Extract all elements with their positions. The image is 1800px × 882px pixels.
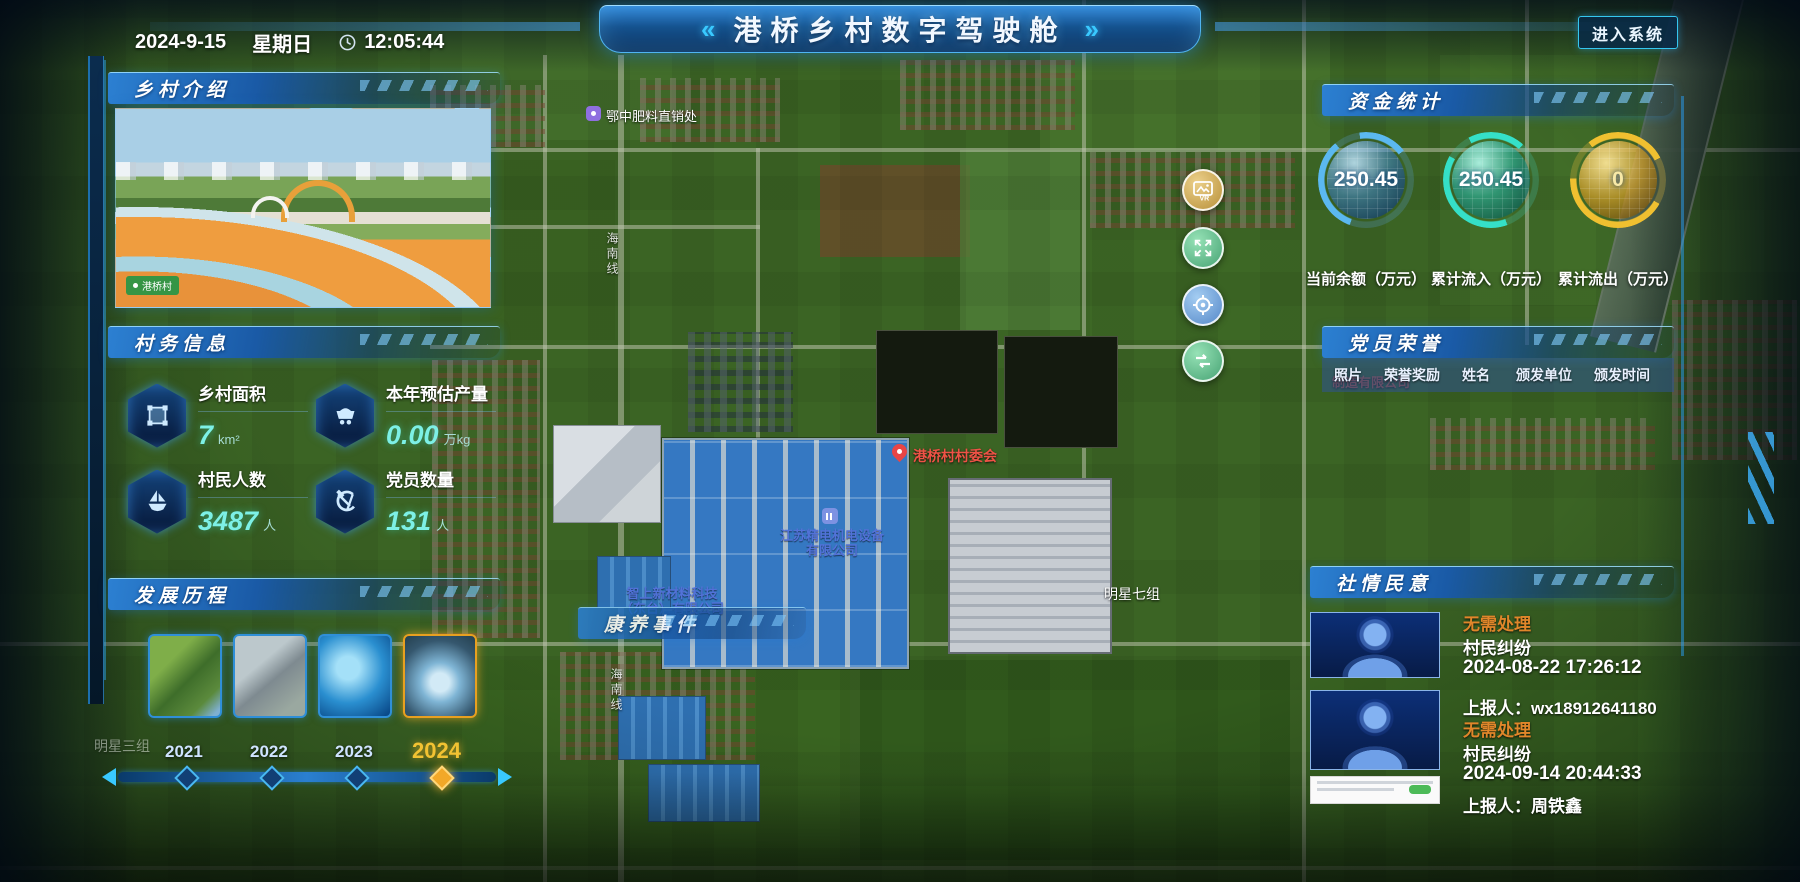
right-frame-slashes: [1748, 432, 1774, 524]
year-2022[interactable]: 2022: [250, 742, 288, 762]
left-tech-frame: [88, 56, 104, 704]
history-thumb-2023[interactable]: [318, 634, 392, 718]
stat-villager-count: 村民人数 3487人: [128, 466, 314, 537]
map-road: [1302, 0, 1306, 882]
datetime-bar: 2024-9-15 星期日 12:05:44: [135, 28, 444, 57]
sentiment-type: 村民纠纷: [1463, 740, 1531, 765]
weekday-text: 星期日: [252, 28, 312, 57]
company1-line2: 有限公司: [768, 543, 896, 558]
intro-panel-title: 乡村介绍: [108, 75, 230, 102]
area-icon: [128, 384, 186, 448]
road-name-label: 海南线: [604, 232, 621, 277]
locate-icon[interactable]: [1182, 284, 1224, 326]
timeline-slider[interactable]: [118, 772, 496, 782]
left-tech-frame-line: [104, 60, 106, 680]
warehouse-building: [948, 478, 1112, 654]
gauge-value: 250.45: [1318, 132, 1414, 228]
village-photo[interactable]: 港桥村: [115, 108, 491, 308]
stat-label: 村民人数: [198, 466, 308, 498]
panel-header-health-events: 康养事件: [578, 607, 806, 639]
company1-line1: 江苏精电机电设备: [768, 528, 896, 543]
sentiment-reporter: 上报人：周铁鑫: [1463, 792, 1582, 817]
stat-unit: 万kg: [444, 429, 471, 448]
location-pin-icon: [133, 283, 138, 288]
sentiment-attachment-thumb[interactable]: [1310, 776, 1440, 804]
stat-value: 0.00: [386, 420, 439, 451]
chevron-left-icon: «: [701, 14, 715, 45]
col-photo: 照片: [1334, 365, 1362, 385]
map-road: [543, 55, 547, 882]
panel-header-funds: 资金统计: [1322, 84, 1674, 116]
col-name: 姓名: [1462, 365, 1490, 385]
sentiment-status: 无需处理: [1463, 610, 1531, 635]
sentiment-type: 村民纠纷: [1463, 634, 1531, 659]
col-award: 荣誉奖励: [1384, 365, 1440, 385]
residential-blocks: [688, 332, 793, 432]
panel-header-honors: 党员荣誉: [1322, 326, 1674, 358]
stat-label: 乡村面积: [198, 380, 308, 412]
stat-party-member-count: 党员数量 131人: [316, 466, 502, 537]
year-2024[interactable]: 2024: [412, 738, 461, 764]
map-label-group3: 明星三组: [94, 736, 150, 756]
year-2021[interactable]: 2021: [165, 742, 203, 762]
clock-icon: [338, 33, 357, 52]
pond: [1004, 336, 1118, 448]
sentiment-avatar[interactable]: [1310, 612, 1440, 678]
history-thumb-2024[interactable]: [403, 634, 477, 718]
sentiment-time: 2024-09-14 20:44:33: [1463, 763, 1642, 785]
timeline-next-arrow[interactable]: [498, 768, 512, 786]
gauge-total-outflow: 0: [1570, 132, 1666, 228]
gauge-value: 0: [1570, 132, 1666, 228]
panel-header-sentiment: 社情民意: [1310, 566, 1674, 598]
expand-icon[interactable]: [1182, 227, 1224, 269]
factory-building-gray: [553, 425, 661, 523]
stat-unit: 人: [436, 515, 449, 534]
cart-icon: [316, 384, 374, 448]
vr-image-icon[interactable]: VR: [1182, 169, 1224, 211]
honors-table-header: 照片 荣誉奖励 姓名 颁发单位 颁发时间: [1322, 358, 1674, 392]
stat-value: 3487: [198, 506, 258, 537]
honors-panel-title: 党员荣誉: [1322, 329, 1444, 356]
funds-panel-title: 资金统计: [1322, 87, 1444, 114]
history-panel-title: 发展历程: [108, 581, 230, 608]
gauge-current-balance: 250.45: [1318, 132, 1414, 228]
company2-line1: 智上新材料科技: [612, 586, 732, 601]
building-poi-icon[interactable]: [822, 508, 838, 524]
sentiment-panel-title: 社情民意: [1310, 569, 1432, 596]
photo-location-text: 港桥村: [142, 278, 172, 293]
stat-estimated-output: 本年预估产量 0.00万kg: [316, 380, 502, 451]
boat-icon: [128, 470, 186, 534]
col-date: 颁发时间: [1594, 365, 1650, 385]
gauge-label-outflow: 累计流出（万元）: [1543, 268, 1693, 289]
col-issuer: 颁发单位: [1516, 365, 1572, 385]
sentiment-avatar[interactable]: [1310, 690, 1440, 770]
date-text: 2024-9-15: [135, 31, 226, 54]
road-name-label: 海南线: [608, 668, 625, 713]
stat-value: 131: [386, 506, 431, 537]
stat-village-area: 乡村面积 7km²: [128, 380, 314, 451]
stat-label: 党员数量: [386, 466, 496, 498]
stat-value: 7: [198, 420, 213, 451]
photo-buildings: [116, 162, 490, 180]
chevron-right-icon: »: [1085, 14, 1099, 45]
switch-icon[interactable]: [1182, 340, 1224, 382]
sentiment-time: 2024-08-22 17:26:12: [1463, 657, 1642, 679]
stat-unit: km²: [218, 432, 240, 447]
panel-header-history: 发展历程: [108, 578, 500, 610]
map-label-committee[interactable]: 港桥村村委会: [913, 446, 997, 466]
page-title: 港桥乡村数字驾驶舱: [733, 9, 1066, 49]
pond: [876, 330, 998, 434]
gauge-value: 250.45: [1443, 132, 1539, 228]
map-label-fertilizer[interactable]: 鄂中肥料直销处: [606, 106, 697, 125]
year-2023[interactable]: 2023: [335, 742, 373, 762]
timeline-prev-arrow[interactable]: [102, 768, 116, 786]
photo-small-arch: [251, 196, 289, 218]
dashboard-stage: 鄂中肥料直销处 港桥村村委会 江苏精电机电设备 有限公司 智上新材料科技 （东台…: [0, 0, 1800, 882]
right-tech-frame-line: [1681, 96, 1684, 656]
history-thumb-2022[interactable]: [233, 634, 307, 718]
map-label-company1[interactable]: 江苏精电机电设备 有限公司: [768, 528, 896, 558]
map-label-group7[interactable]: 明星七组: [1104, 584, 1160, 604]
affairs-panel-title: 村务信息: [108, 329, 230, 356]
panel-header-intro: 乡村介绍: [108, 72, 500, 104]
sentiment-status: 无需处理: [1463, 716, 1531, 741]
map-pin-fertilizer[interactable]: [586, 106, 601, 121]
party-icon: [316, 470, 374, 534]
photo-location-tag: 港桥村: [126, 276, 179, 295]
time-text: 12:05:44: [364, 31, 444, 54]
blue-roof-shed: [618, 696, 706, 760]
history-thumb-2021[interactable]: [148, 634, 222, 718]
enter-system-button[interactable]: 进入系统: [1578, 16, 1678, 49]
stat-unit: 人: [263, 515, 276, 534]
photo-arch-sculpture: [281, 180, 355, 222]
gauge-total-inflow: 250.45: [1443, 132, 1539, 228]
health-events-panel-title: 康养事件: [578, 610, 700, 637]
stat-label: 本年预估产量: [386, 380, 496, 412]
village-houses: [1430, 418, 1655, 470]
app-title-bar: « 港桥乡村数字驾驶舱 »: [599, 5, 1201, 53]
vr-label: VR: [1200, 196, 1210, 203]
panel-header-affairs: 村务信息: [108, 326, 500, 358]
